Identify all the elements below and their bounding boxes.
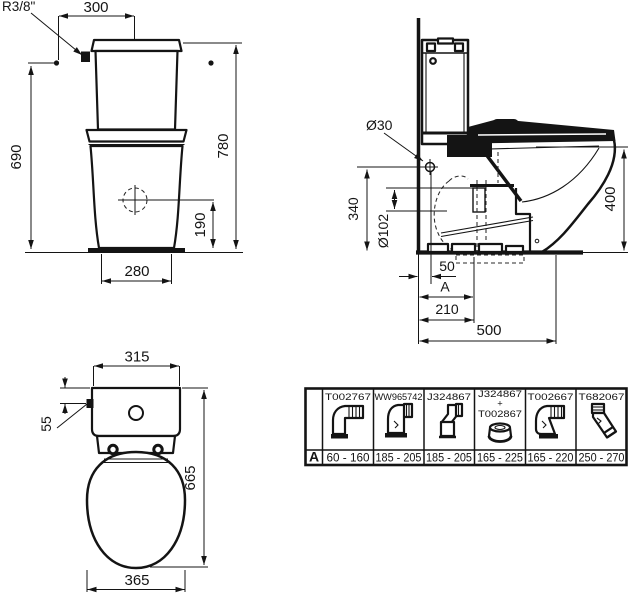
connector-code: T002667 bbox=[528, 392, 574, 403]
connector-range: 185 - 205 bbox=[376, 453, 422, 465]
floor-fixing-pads bbox=[428, 239, 539, 252]
wc-technical-drawing-canvas: R3/8" 300 690 780 190 bbox=[0, 0, 629, 600]
dim-780-text: 780 bbox=[215, 133, 232, 158]
connector-range: 185 - 205 bbox=[426, 453, 472, 465]
dim-cistern-width-315: 315 bbox=[94, 349, 180, 387]
dim-d30-text: Ø30 bbox=[366, 117, 393, 133]
connector-range: 250 - 270 bbox=[579, 453, 625, 465]
inlet-left-marker-dot bbox=[54, 60, 59, 65]
dim-55-text: 55 bbox=[38, 416, 54, 432]
connector-range: 60 - 160 bbox=[327, 453, 370, 465]
table-row-label: A bbox=[309, 449, 319, 465]
dim-400-text: 400 bbox=[602, 186, 619, 211]
front-inlet-boss bbox=[81, 52, 90, 63]
dim-total-depth-500: 500 bbox=[420, 322, 556, 341]
connector-range: 165 - 225 bbox=[477, 453, 523, 465]
dim-d102-text: Ø102 bbox=[375, 214, 391, 248]
dim-300-text: 300 bbox=[83, 0, 108, 16]
table-col-1: T002767 60 - 160 bbox=[325, 392, 371, 465]
dim-500-text: 500 bbox=[476, 322, 501, 339]
dim-365-text: 365 bbox=[124, 572, 149, 589]
hinge-right bbox=[154, 445, 162, 453]
dim-690-text: 690 bbox=[8, 144, 25, 169]
dim-base-width-280: 280 bbox=[102, 254, 172, 284]
angled-connector-icon bbox=[439, 404, 462, 437]
dim-inlet-height-690: 690 bbox=[8, 66, 31, 249]
dim-outlet-distance-210: 210 bbox=[420, 301, 474, 320]
front-view: R3/8" 300 690 780 190 bbox=[2, 0, 243, 284]
table-col-5: T002667 165 - 220 bbox=[528, 392, 574, 465]
label-inlet-thread: R3/8" bbox=[2, 0, 82, 55]
side-view: Ø30 340 Ø102 400 bbox=[345, 18, 628, 344]
dim-190-text: 190 bbox=[192, 212, 209, 237]
table-col-4: J324867 + T002867 165 - 225 bbox=[477, 388, 523, 465]
dim-outlet-diameter-102: Ø102 bbox=[375, 188, 482, 248]
inlet-thread-text: R3/8" bbox=[2, 0, 36, 14]
angled-corrugated-connector-icon bbox=[592, 404, 616, 438]
dim-315-text: 315 bbox=[124, 349, 149, 366]
connector-code: T002767 bbox=[325, 392, 371, 403]
connector-range: 165 - 220 bbox=[528, 453, 574, 465]
dim-inlet-offset-55: 55 bbox=[38, 377, 90, 432]
dim-340-text: 340 bbox=[345, 197, 361, 221]
dim-665-text: 665 bbox=[182, 465, 199, 490]
front-cistern-lid bbox=[92, 40, 182, 51]
table-col-3: J324867 185 - 205 bbox=[426, 392, 472, 465]
hinge-left bbox=[109, 445, 117, 453]
vertical-connector-icon bbox=[385, 404, 412, 438]
dim-flush-entry-190: 190 bbox=[192, 202, 213, 248]
connector-code-2: T002867 bbox=[478, 408, 522, 419]
offset-adapter-icon bbox=[489, 424, 511, 442]
dim-adjustable-A: A bbox=[420, 279, 474, 298]
dim-210-text: 210 bbox=[435, 301, 459, 317]
dim-bowl-width-365: 365 bbox=[87, 570, 185, 592]
table-col-6: T682067 250 - 270 bbox=[579, 392, 625, 465]
top-seat-outline bbox=[87, 452, 185, 568]
top-view: 315 55 665 365 bbox=[38, 349, 208, 593]
inlet-right-marker-dot bbox=[208, 60, 213, 65]
dim-wall-to-inlet-50: 50 bbox=[399, 258, 456, 277]
wc-technical-drawing: R3/8" 300 690 780 190 bbox=[0, 0, 629, 600]
dim-280-text: 280 bbox=[124, 263, 149, 280]
elbow-corrugated-connector-2-icon bbox=[536, 406, 564, 439]
table-col-2: WW965742 185 - 205 bbox=[375, 391, 423, 465]
connector-code: WW965742 bbox=[375, 391, 423, 402]
connector-table: A T002767 60 - 160 WW965742 185 - 205 bbox=[306, 388, 627, 465]
seat-profile bbox=[468, 119, 616, 144]
connector-code: T682067 bbox=[579, 392, 625, 403]
front-pedestal bbox=[91, 146, 183, 248]
top-inlet-boss bbox=[87, 399, 94, 408]
front-seat bbox=[87, 130, 187, 142]
dim-A-text: A bbox=[440, 279, 450, 295]
elbow-corrugated-connector-icon bbox=[331, 406, 363, 439]
top-cistern bbox=[92, 388, 180, 436]
connector-code-plus: + bbox=[497, 398, 503, 409]
dim-50-text: 50 bbox=[439, 258, 455, 274]
front-cistern-body bbox=[96, 51, 178, 130]
connector-code: J324867 bbox=[427, 392, 471, 403]
